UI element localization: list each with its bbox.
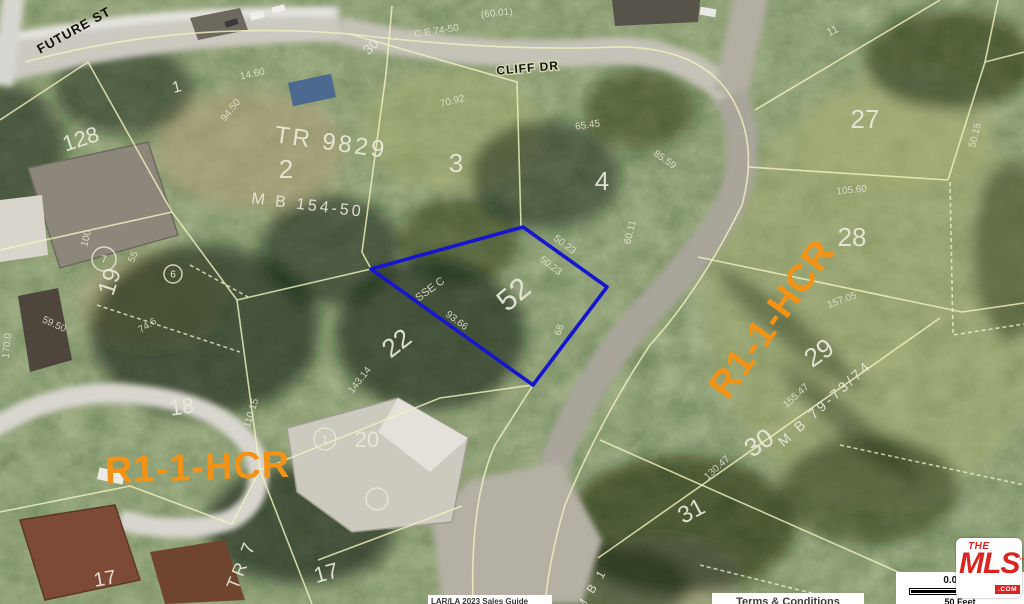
road-left-edge bbox=[2, 0, 14, 85]
aerial-map[interactable]: 761 FUTURE STCLIFF DRR1-1-HCRR1-1-HCRTR … bbox=[0, 0, 1024, 604]
lot-marker-number: 1 bbox=[322, 435, 328, 446]
mls-logo-tm: ™ bbox=[1019, 558, 1024, 564]
mls-logo-com: .COM bbox=[995, 585, 1020, 594]
lot-number: 17 bbox=[92, 566, 118, 592]
lot-marker-number: 6 bbox=[170, 270, 176, 281]
mls-logo-mls: MLS™ bbox=[959, 552, 1022, 575]
lot-number: 18 bbox=[168, 392, 196, 420]
zoning-label-left: R1-1-HCR bbox=[104, 444, 291, 492]
scale-feet-label: 50 Feet bbox=[900, 597, 1020, 604]
aerial-imagery: 761 FUTURE STCLIFF DRR1-1-HCRR1-1-HCRTR … bbox=[0, 0, 1024, 604]
mls-logo: THE MLS™ .COM bbox=[956, 538, 1022, 598]
lot-number: 2 bbox=[279, 154, 293, 184]
map-attribution: LAR/LA 2023 Sales Guide bbox=[428, 595, 552, 604]
building-roof bbox=[0, 195, 48, 262]
lot-number: 3 bbox=[449, 148, 463, 178]
road-top-right bbox=[730, 0, 752, 95]
building-roof bbox=[612, 0, 700, 26]
lot-number: 4 bbox=[595, 166, 609, 196]
terms-link[interactable]: Terms & Conditions bbox=[712, 593, 864, 604]
lot-number: 20 bbox=[355, 427, 379, 452]
lot-number: 28 bbox=[838, 222, 867, 252]
lot-number: 27 bbox=[851, 104, 880, 134]
lot-marker-number: 7 bbox=[101, 255, 107, 266]
